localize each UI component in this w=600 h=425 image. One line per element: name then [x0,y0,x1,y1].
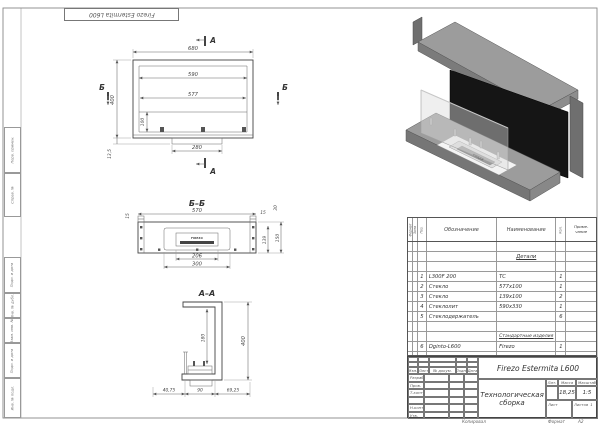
spec-row: 1L300F 200ТС1 [408,272,596,282]
empty-cell [449,397,464,405]
spec-pos: 5 [418,312,427,321]
tb-row-utv: Утв. [408,412,424,420]
spec-row-blank [408,352,596,355]
margin-label: Подп. и дата [11,348,15,372]
spec-qty: 1 [556,282,566,291]
margin-cell-podp-data-2: Подп. и дата [4,343,21,378]
dim-90: 90 [197,388,203,394]
spec-designation: Стекло [427,292,497,301]
format-value: А2 [578,419,584,424]
spec-designation: L300F 200 [427,272,497,281]
empty-cell [449,382,464,390]
tb-col-docnum: № докум. [429,367,456,374]
copied-by-label: Копировал [462,419,486,424]
tb-col-list: Лист [418,367,429,374]
tb-sheet-label: Лист [546,400,572,419]
tb-row-tkontr: Т.контр. [408,389,424,397]
format-label: Формат [548,419,565,424]
spec-pos: 4 [418,302,427,311]
spec-row-blank [408,322,596,332]
title-block: Изм. Лист № докум. Подп. Дата Разраб. Пр… [407,356,597,418]
empty-cell [464,404,479,412]
dim-15-right: 15 [260,210,266,216]
spec-designation: Стекло [427,282,497,291]
spec-designation: Dginto-L600 [427,342,497,351]
tb-lit-value [546,386,558,400]
empty-cell [464,397,479,405]
spec-name: 139х100 [497,292,556,301]
dim-180: 180 [201,334,207,343]
section-mark-a-bottom: А [209,167,216,176]
dim-15-left: 15 [125,213,131,219]
margin-cell-sprav-no: Справ. № [4,173,21,217]
margin-label: Инв. № подл. [11,386,15,411]
spec-name [497,312,556,321]
dim-40-75: 40,75 [163,388,176,394]
spec-row: 6Dginto-L600Firezo1 [408,342,596,352]
spec-name: 577х100 [497,282,556,291]
dim-139: 139 [262,236,268,245]
empty-cell [449,374,464,382]
tb-doc-name: Технологическая сборка [478,379,546,419]
spec-header-row: Формат Зона Поз. Обозначение Наименовани… [408,218,596,242]
empty-cell [464,382,479,390]
spec-qty: 2 [556,292,566,301]
tb-row-prov: Пров. [408,382,424,390]
tb-sheets-value: 1 [590,402,592,407]
spec-row: 5Стеклодержатель6 [408,312,596,322]
spec-header-note: Приме- чание [566,218,596,241]
dim-577: 577 [188,92,199,98]
spec-designation: Стеклолит [427,302,497,311]
spec-name: 590х330 [497,302,556,311]
empty-cell [408,397,424,405]
spec-header-qty: Кол. [556,218,566,241]
dim-280: 280 [192,145,203,151]
empty-cell [424,382,449,390]
empty-cell [424,374,449,382]
dim-30: 30 [273,205,279,211]
tb-row-nkontr: Н.контр. [408,404,424,412]
spec-pos: 1 [418,272,427,281]
dim-590: 590 [188,72,199,78]
spec-qty: 6 [556,312,566,321]
spec-qty: 1 [556,342,566,351]
spec-name: ТС [497,272,556,281]
section-aa-title: А–А [198,289,215,298]
empty-cell [449,389,464,397]
tb-product-title: Firezo Estermita L600 [478,357,598,379]
empty-cell [424,404,449,412]
dim-570: 570 [192,208,203,214]
margin-label: Инв. № дубл. [11,293,15,318]
margin-label: Перв. примен. [11,137,15,164]
empty-cell [424,397,449,405]
dim-300: 300 [192,262,203,268]
spec-pos: 3 [418,292,427,301]
dim-69-25: 69,25 [227,388,240,394]
spec-pos: 6 [418,342,427,351]
spec-section-title: Стандартные изделия [497,332,556,341]
empty-cell [449,404,464,412]
tb-col-data: Дата [467,367,478,374]
margin-label: Подп. и дата [11,263,15,287]
spec-qty: 1 [556,302,566,311]
spec-row-blank [408,242,596,252]
spec-section-title: Детали [497,252,556,261]
margin-cell-podp-data-1: Подп. и дата [4,257,21,293]
spec-header-name: Наименование [497,218,556,241]
margin-cell-inv-dubl: Инв. № дубл. [4,293,21,318]
section-mark-a-top: А [209,36,216,45]
front-view: 680 590 577 100 280 400 13,5 [99,36,288,176]
empty-cell [464,374,479,382]
spec-row: 3Стекло139х1002 [408,292,596,302]
dim-400-front: 400 [110,94,116,105]
tb-sheets-label: Листов [574,402,588,407]
empty-cell [424,389,449,397]
dim-206: 206 [192,254,203,260]
empty-cell [424,412,449,420]
tb-row-razrab: Разраб. [408,374,424,382]
margin-label: Взам. инв. № [11,318,15,342]
tb-mass-label: Масса [558,379,576,386]
tb-col-podp: Подп. [456,367,467,374]
spec-header-designation: Обозначение [427,218,497,241]
section-bb-view: Б–Б 570 FIREZO 15 15 30 [125,199,284,269]
section-mark-b-right: Б [282,83,288,92]
tb-lit-label: Лит. [546,379,558,386]
spec-header-pos: Поз. [418,218,427,241]
spec-section-details: Детали [408,252,596,262]
tb-scale-label: Масштаб [576,379,598,386]
tb-sheets-cell: Листов 1 [572,400,598,419]
spec-pos: 2 [418,282,427,291]
tb-col-izm: Изм. [408,367,418,374]
spec-name: Firezo [497,342,556,351]
margin-cell-perv-primen: Перв. примен. [4,127,21,173]
dim-680: 680 [188,46,199,52]
section-bb-title: Б–Б [189,199,205,208]
drawing-sheet: 680 590 577 100 280 400 13,5 [0,0,600,425]
burner-brand-label: FIREZO [191,236,203,240]
dim-400-aa: 400 [241,335,247,346]
margin-label: Справ. № [11,186,15,203]
tb-mass-value: 18,25 [558,386,576,400]
top-left-stamp: Firezo Estermita L600 [64,8,179,21]
spec-qty: 1 [556,272,566,281]
section-mark-b-left: Б [99,83,105,92]
isometric-view: FIREZO [406,17,583,201]
margin-cell-vzam-inv: Взам. инв. № [4,318,21,343]
tb-scale-value: 1:5 [576,386,598,400]
dim-150: 150 [275,234,281,243]
top-left-stamp-label: Firezo Estermita L600 [89,11,155,18]
dim-13-5: 13,5 [107,149,113,159]
spec-row-blank [408,262,596,272]
spec-row: 2Стекло577х1001 [408,282,596,292]
spec-section-standard: Стандартные изделия [408,332,596,342]
margin-cell-inv-podl: Инв. № подл. [4,378,21,418]
dim-100: 100 [140,118,146,127]
spec-row: 4Стеклолит590х3301 [408,302,596,312]
empty-cell [464,389,479,397]
section-aa-view: А–А 180 400 [153,289,252,397]
spec-table: Формат Зона Поз. Обозначение Наименовани… [407,217,597,356]
spec-designation: Стеклодержатель [427,312,497,321]
